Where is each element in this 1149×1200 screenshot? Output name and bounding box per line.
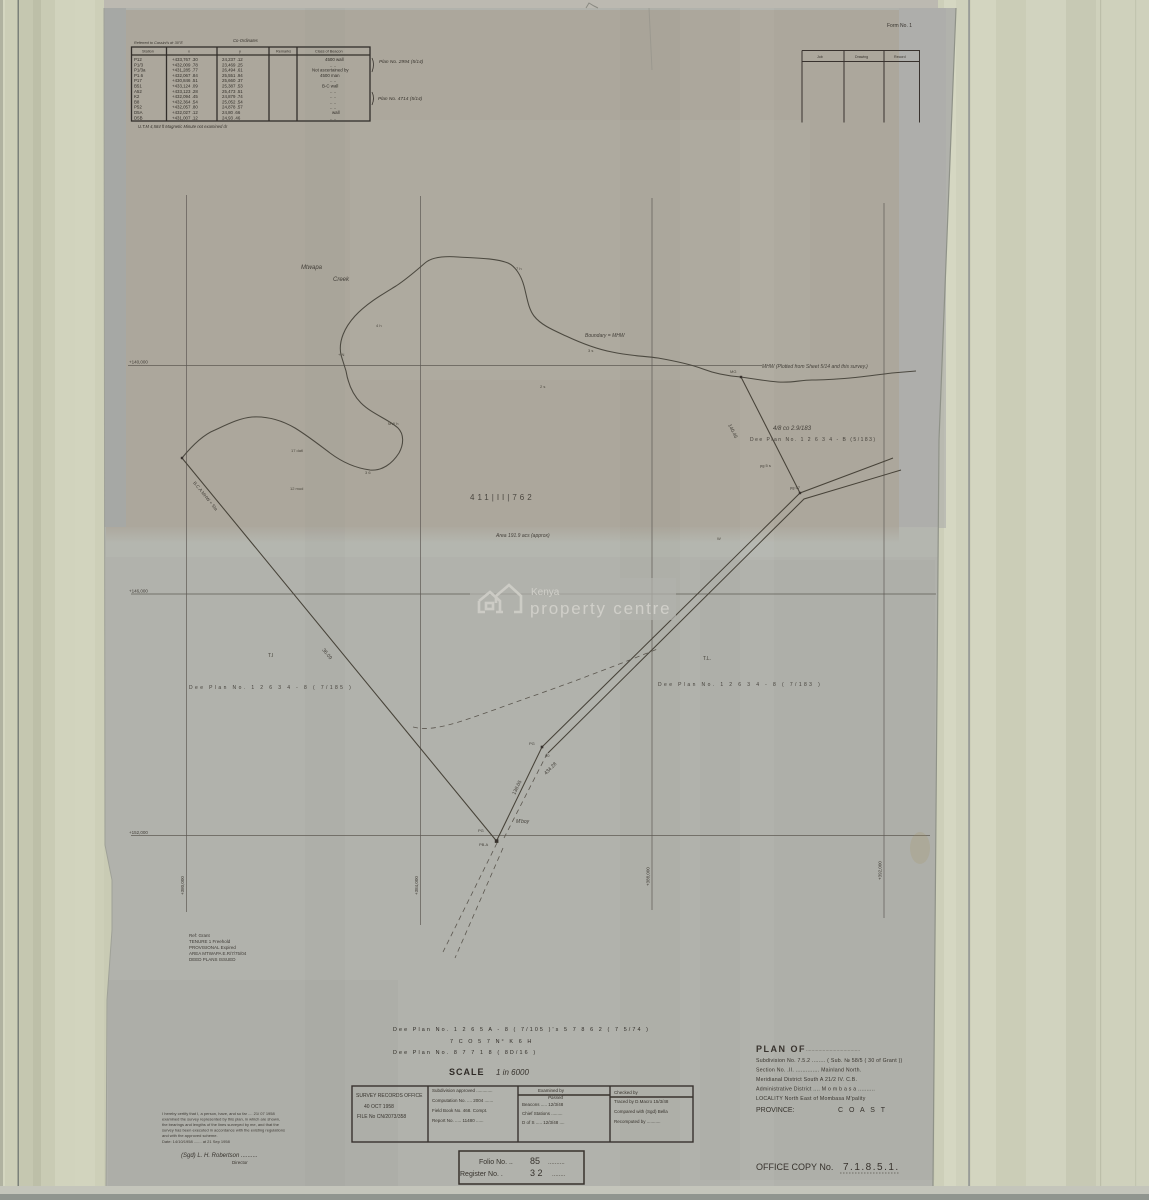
svg-text:MW h: MW h — [388, 421, 398, 426]
svg-text:+432,027 .12: +432,027 .12 — [172, 110, 198, 115]
svg-text:MG: MG — [730, 369, 736, 374]
svg-text:Subdivision No. 7.5.2 .....: Subdivision No. 7.5.2 ........ ( Sub. № … — [756, 1058, 903, 1064]
svg-text:Dee Plan No. 1 2 6 3: Dee Plan No. 1 2 6 3 4 - 8 ( 7/185 ) — [189, 685, 353, 691]
svg-text:Boundary = MHW: Boundary = MHW — [585, 333, 626, 339]
svg-text:Dee Plan No. 1 2 6: Dee Plan No. 1 2 6 5 A - 8 ( 7/105 )'s 5… — [393, 1027, 650, 1033]
svg-text:+431,007 .12: +431,007 .12 — [172, 115, 198, 120]
svg-text:Form No. 1: Form No. 1 — [887, 23, 912, 29]
svg-text:Dee Plan No. 1 2 6 3 4: Dee Plan No. 1 2 6 3 4 - B (5/183) — [750, 437, 877, 443]
svg-text:Recomputed by ...........: Recomputed by ........... — [614, 1119, 661, 1124]
svg-text:Area 191.9 acs (approx): Area 191.9 acs (approx) — [495, 533, 550, 539]
svg-text:PG: PG — [529, 741, 535, 746]
svg-text:K2: K2 — [134, 94, 140, 99]
svg-text:Kenya: Kenya — [531, 587, 560, 598]
svg-text:LOCALITY North East of Mom: LOCALITY North East of Mombasa M'pality — [756, 1096, 866, 1102]
svg-text:+392,000: +392,000 — [878, 861, 883, 880]
svg-text:SURVEY RECORDS OFFICE: SURVEY RECORDS OFFICE — [356, 1093, 423, 1099]
svg-text:+430,846 .51: +430,846 .51 — [172, 78, 198, 83]
svg-text:3 s: 3 s — [588, 348, 593, 353]
svg-text:.. ..: .. .. — [330, 94, 336, 99]
svg-text:+384,000: +384,000 — [414, 876, 419, 895]
svg-text:P52: P52 — [134, 105, 142, 110]
svg-text:pg 5 s: pg 5 s — [760, 463, 771, 468]
svg-text:+432,364 .54: +432,364 .54 — [172, 99, 198, 104]
svg-text:85: 85 — [530, 1156, 540, 1166]
svg-text:M'boy: M'boy — [516, 819, 530, 825]
svg-text:A52: A52 — [134, 89, 142, 94]
svg-text:7.1.8.5.1.: 7.1.8.5.1. — [843, 1162, 900, 1173]
svg-text:Register No. .: Register No. . — [460, 1171, 503, 1178]
svg-text:Station: Station — [142, 50, 154, 54]
svg-text:4/8 co 2.9/183: 4/8 co 2.9/183 — [773, 426, 812, 432]
svg-text:Mtwapa: Mtwapa — [301, 265, 323, 271]
svg-text:........: ........ — [552, 1172, 566, 1178]
svg-text:B51: B51 — [134, 84, 142, 89]
svg-text:411|II|762: 411|II|762 — [470, 493, 535, 502]
svg-text:+388,000: +388,000 — [646, 867, 651, 886]
svg-text:PB.A: PB.A — [479, 842, 488, 847]
svg-text:y: y — [239, 50, 241, 54]
svg-text:T.L.: T.L. — [703, 656, 711, 662]
svg-text:Examined by: Examined by — [538, 1088, 565, 1093]
svg-text:24,93 .46: 24,93 .46 — [222, 115, 241, 120]
svg-text:P1.6: P1.6 — [134, 73, 144, 78]
svg-text:PROVISIONAL Expired: PROVISIONAL Expired — [189, 945, 236, 950]
svg-text:D of S ..... 12/3/48 ....: D of S ..... 12/3/48 .... — [522, 1120, 565, 1125]
svg-text:Plan No. 2994 (5/14): Plan No. 2994 (5/14) — [379, 59, 424, 65]
svg-text:25,473 .51: 25,473 .51 — [222, 89, 243, 94]
svg-text:Dee Plan No. 8 7 7: Dee Plan No. 8 7 7 1 8 ( 8D/16 ) — [393, 1050, 537, 1056]
svg-text:x: x — [188, 50, 190, 54]
svg-text:Subdivision approved .........: Subdivision approved ............. — [432, 1088, 493, 1093]
svg-text:23,469 .25: 23,469 .25 — [222, 62, 243, 67]
svg-text:Referred to Cassini's dr 30°: Referred to Cassini's dr 30°E — [134, 41, 183, 45]
svg-text:3 6: 3 6 — [365, 470, 371, 475]
svg-text:+152,000: +152,000 — [129, 830, 148, 835]
svg-text:17 datl: 17 datl — [291, 448, 303, 453]
svg-text:+380,000: +380,000 — [180, 876, 185, 895]
svg-text:7 h: 7 h — [516, 266, 522, 271]
svg-text:40 OCT 1958: 40 OCT 1958 — [364, 1104, 394, 1110]
svg-text:Director: Director — [232, 1160, 248, 1165]
svg-text:the bearings and lengths of t: the bearings and lengths of the lines su… — [162, 1122, 280, 1127]
svg-text:.. ..: .. .. — [330, 62, 336, 67]
svg-text:4500 wall: 4500 wall — [325, 57, 344, 62]
svg-text:25,660 .37: 25,660 .37 — [222, 78, 243, 83]
svg-text:7 C O 5 7: 7 C O 5 7 N° K 6 H — [450, 1039, 533, 1045]
svg-text:.. ..: .. .. — [330, 78, 336, 83]
svg-text:Compared with (Sgd) Bella: Compared with (Sgd) Bella — [614, 1109, 668, 1114]
svg-text:12 mud: 12 mud — [290, 486, 303, 491]
svg-text:Class of Beacon: Class of Beacon — [315, 50, 343, 54]
svg-text:D5B: D5B — [134, 115, 143, 120]
svg-text:pg 57: pg 57 — [790, 485, 801, 490]
svg-text:D5A: D5A — [134, 110, 143, 115]
svg-text:Creek: Creek — [333, 277, 350, 283]
svg-text:Drawing: Drawing — [855, 55, 868, 59]
svg-text:Section No. .II. ...........: Section No. .II. .............. Mainland… — [756, 1068, 861, 1074]
svg-text:+433,767 .30: +433,767 .30 — [172, 57, 198, 62]
svg-text:Job: Job — [817, 55, 823, 59]
svg-text:P17: P17 — [134, 78, 142, 83]
svg-text:examined the survey represente: examined the survey represented by this … — [162, 1117, 280, 1122]
svg-text:26,494 .61: 26,494 .61 — [222, 68, 243, 73]
svg-text:P1/3: P1/3 — [134, 62, 144, 67]
svg-text:.. ..: .. .. — [330, 89, 336, 94]
svg-text:Remarks: Remarks — [276, 50, 291, 54]
svg-text:PROVINCE:: PROVINCE: — [756, 1107, 795, 1114]
svg-text:B-C wall: B-C wall — [322, 84, 338, 89]
svg-text:24,879 .74: 24,879 .74 — [222, 94, 243, 99]
svg-text:Ref: Grant: Ref: Grant — [189, 933, 211, 938]
svg-text:Traced by D.Macro 15/3/48: Traced by D.Macro 15/3/48 — [614, 1099, 669, 1104]
svg-text:PLAN OF: PLAN OF — [756, 1044, 806, 1054]
svg-text:AREA MTWAPA E.R/7/75/04: AREA MTWAPA E.R/7/75/04 — [189, 951, 247, 956]
svg-text:1 in 6000: 1 in 6000 — [496, 1068, 529, 1077]
svg-text:Co-Ordinates: Co-Ordinates — [233, 38, 259, 43]
svg-text:3 2: 3 2 — [530, 1168, 543, 1178]
svg-text:24,80 .66: 24,80 .66 — [222, 110, 241, 115]
svg-text:+432,009 .78: +432,009 .78 — [172, 62, 198, 67]
svg-text:Report No. ..... 11480 ......: Report No. ..... 11480 ...... — [432, 1118, 483, 1123]
svg-text:Not ascertained by: Not ascertained by — [312, 68, 349, 73]
svg-text:Passed: Passed — [548, 1095, 564, 1100]
svg-text:4 h: 4 h — [376, 323, 382, 328]
svg-text:+ N: + N — [338, 352, 344, 357]
svg-text:TENURE 1 Freehold: TENURE 1 Freehold — [189, 939, 231, 944]
svg-text:.. ..: .. .. — [330, 99, 336, 104]
svg-text:Record: Record — [894, 55, 906, 59]
svg-text:Administrative District ....: Administrative District .... M o m b a s… — [756, 1087, 875, 1093]
svg-text:+431,285 .77: +431,285 .77 — [172, 68, 198, 73]
svg-text:25,387 .53: 25,387 .53 — [222, 84, 243, 89]
svg-text:wall: wall — [332, 110, 340, 115]
svg-text:25,052 .54: 25,052 .54 — [222, 99, 243, 104]
svg-text:Beacons ..... 12/3/48: Beacons ..... 12/3/48 — [522, 1102, 564, 1107]
svg-text:Computation No. .... 2004 ....: Computation No. .... 2004 ....... — [432, 1098, 493, 1103]
svg-text:24,237 .12: 24,237 .12 — [222, 57, 243, 62]
svg-text:C O A S T: C O A S T — [838, 1107, 887, 1114]
svg-text:U.T.M 4,584 ft Magnetic M: U.T.M 4,584 ft Magnetic Minute not exami… — [138, 124, 228, 129]
svg-text:Field Book No. 468. Compt.: Field Book No. 468. Compt. — [432, 1108, 487, 1113]
svg-text:24,878 .57: 24,878 .57 — [222, 105, 243, 110]
svg-text:+140,000: +140,000 — [129, 360, 148, 365]
svg-text:SCALE: SCALE — [449, 1067, 485, 1077]
svg-text:Dee Plan No. 1 2 6 3: Dee Plan No. 1 2 6 3 4 - 8 ( 7/183 ) — [658, 682, 822, 688]
svg-text:+432,067 .84: +432,067 .84 — [172, 73, 198, 78]
svg-text:property centre: property centre — [530, 599, 671, 618]
svg-text:Meridianal District South A: Meridianal District South A 21/2 IV. C.B… — [756, 1077, 857, 1083]
svg-text:Chief Stations .........: Chief Stations ......... — [522, 1111, 563, 1116]
svg-text:survey has been executed in ac: survey has been executed in accordance w… — [162, 1128, 285, 1133]
svg-text:I hereby certify that I, a per: I hereby certify that I, a person, have,… — [162, 1111, 276, 1116]
svg-text:Checked by: Checked by — [614, 1090, 639, 1095]
svg-text:..........: .......... — [548, 1160, 565, 1166]
svg-text:+146,000: +146,000 — [129, 589, 148, 594]
svg-text:FILE No CN/2073/358: FILE No CN/2073/358 — [357, 1114, 406, 1120]
svg-text:2 s: 2 s — [540, 384, 545, 389]
svg-text:W: W — [717, 536, 721, 541]
svg-text:(Sgd) L. H. Robertson .......: (Sgd) L. H. Robertson .......... — [181, 1153, 258, 1159]
svg-text:+433,123 .28: +433,123 .28 — [172, 89, 198, 94]
svg-text:Date: 14/10/1958 .......: Date: 14/10/1958 ....... at 21 Sep 1958 — [162, 1139, 231, 1144]
svg-text:..............................: ....................................... — [806, 1047, 860, 1053]
svg-text:DEED PLANS ISSUED: DEED PLANS ISSUED — [189, 957, 236, 962]
svg-text:+432,094 .45: +432,094 .45 — [172, 94, 198, 99]
svg-text:Plan No. 4714 (5/14): Plan No. 4714 (5/14) — [378, 96, 423, 102]
svg-text:+433,124 .09: +433,124 .09 — [172, 84, 198, 89]
svg-text:.. ..: .. .. — [330, 115, 336, 120]
svg-text:4500 man: 4500 man — [320, 73, 340, 78]
svg-text:+432,057 .80: +432,057 .80 — [172, 105, 198, 110]
svg-text:P12: P12 — [134, 57, 142, 62]
svg-text:T.I: T.I — [268, 653, 273, 659]
svg-text:MHW (Plotted from Sheet 5/14 a: MHW (Plotted from Sheet 5/14 and this su… — [762, 364, 868, 370]
svg-text:90: 90 — [545, 753, 550, 758]
svg-text:P1/3a: P1/3a — [134, 68, 146, 73]
svg-text:25,551 .94: 25,551 .94 — [222, 73, 243, 78]
svg-text:and with the approved scheme.: and with the approved scheme. — [162, 1133, 218, 1138]
svg-text:PG: PG — [478, 828, 484, 833]
svg-text:OFFICE COPY No.: OFFICE COPY No. — [756, 1162, 833, 1172]
svg-text:B8: B8 — [134, 99, 140, 104]
svg-text:Folio No. ..: Folio No. .. — [479, 1159, 513, 1166]
svg-text:.. ..: .. .. — [330, 105, 336, 110]
